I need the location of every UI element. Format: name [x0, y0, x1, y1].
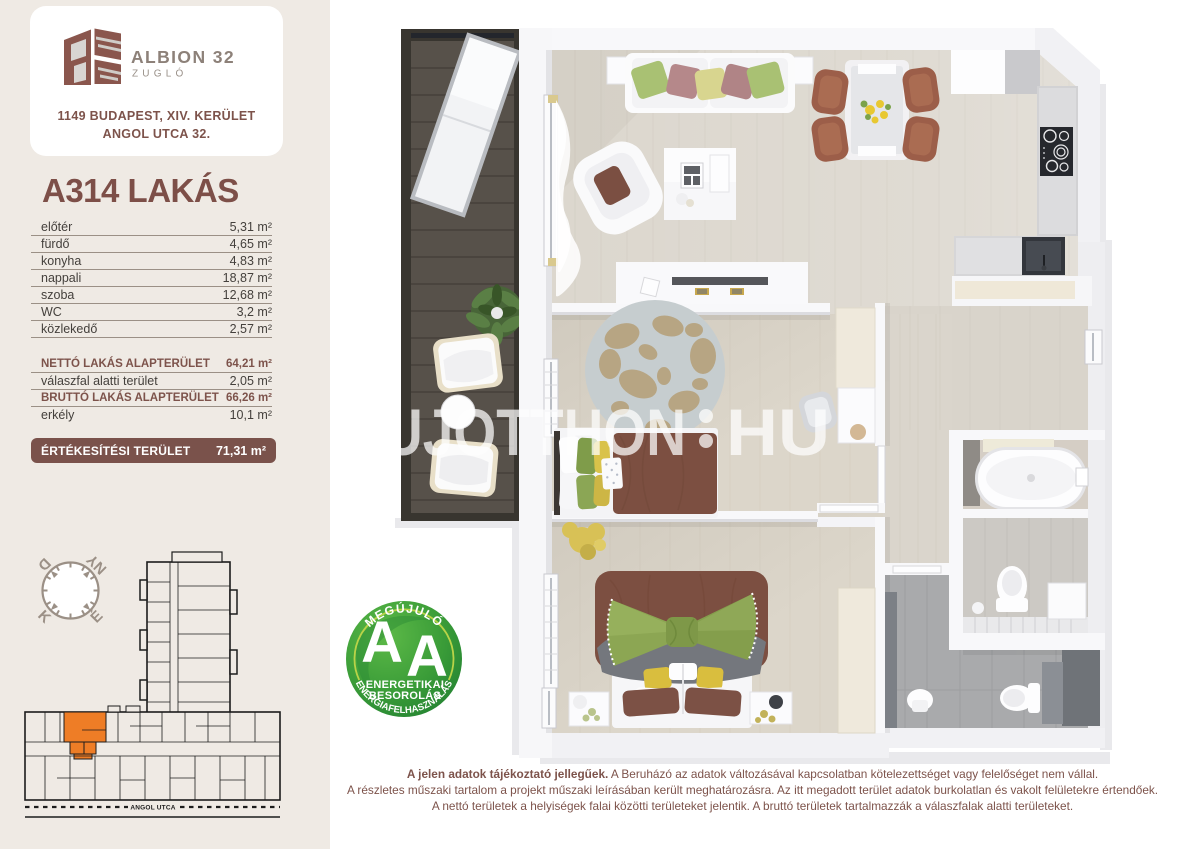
- svg-text:HU: HU: [726, 395, 830, 469]
- svg-text:A: A: [361, 610, 403, 675]
- svg-text:UJOTTHON: UJOTTHON: [383, 395, 686, 469]
